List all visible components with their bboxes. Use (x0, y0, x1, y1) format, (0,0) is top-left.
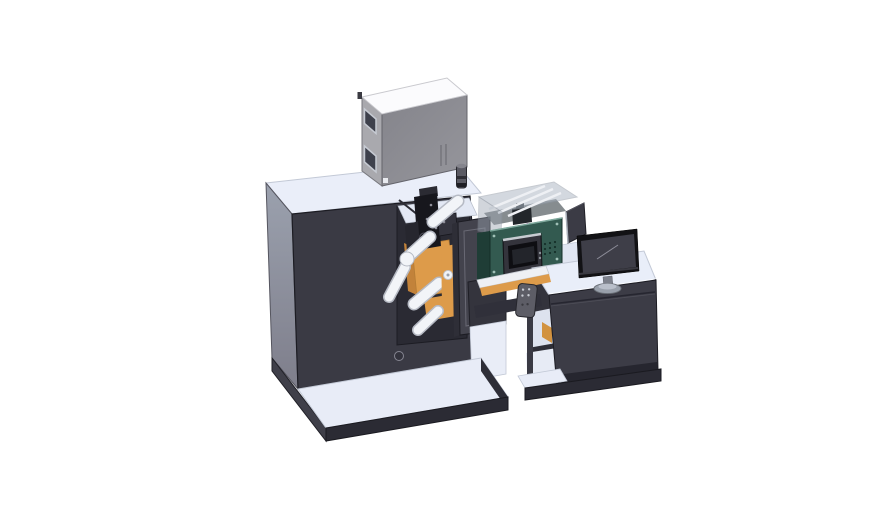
panel-screw (556, 223, 559, 226)
cabinet-hinge (358, 92, 363, 99)
front-panel-port-hole (395, 352, 404, 361)
cabinet-latch (383, 178, 388, 183)
control-panel-side (477, 231, 490, 280)
screw-dot (430, 204, 433, 207)
screen-button[interactable] (539, 252, 541, 254)
exhaust-cylinder (457, 164, 467, 188)
handheld-controller[interactable] (515, 283, 537, 318)
screen-button[interactable] (539, 257, 541, 259)
cylinder-base (457, 183, 466, 187)
panel-screw (493, 271, 496, 274)
printing-machine-scene (0, 0, 888, 522)
panel-screw (556, 258, 559, 261)
roller-end-cap (400, 252, 414, 266)
machine-render-canvas (0, 0, 888, 522)
panel-screw (493, 235, 496, 238)
top-cabinet (358, 78, 468, 186)
controller-body[interactable] (515, 283, 537, 318)
bracket-hole-center (447, 274, 450, 277)
cylinder-band (457, 176, 467, 179)
cylinder-cap (457, 164, 467, 168)
monitor-base-top (599, 284, 617, 290)
